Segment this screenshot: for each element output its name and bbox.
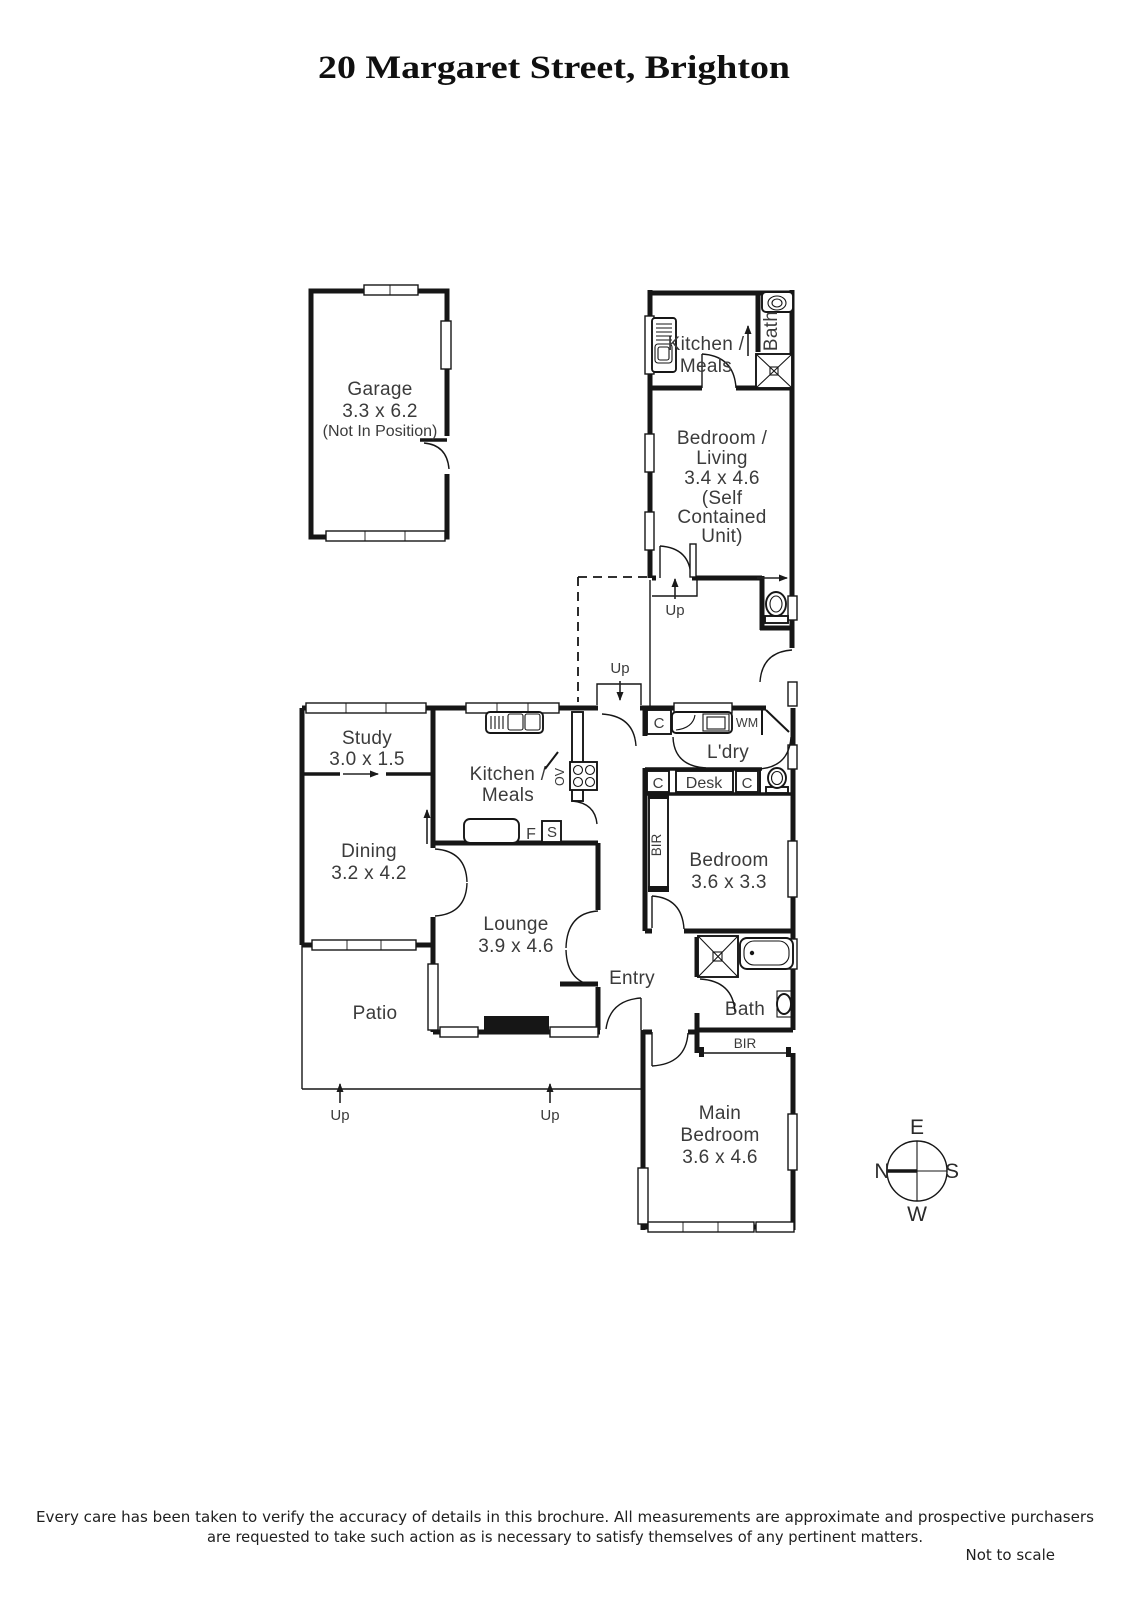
window [326,531,445,541]
unit-bedliving-l4: (Self [702,488,743,509]
dining-dims: 3.2 x 4.2 [331,863,407,884]
unit-kitchen-label: Kitchen / [668,334,745,355]
unit-bedliving-l6: Unit) [701,526,743,547]
floor-plan-page: 20 Margaret Street, Brighton Garage 3.3 … [0,0,1131,1600]
door-arc [602,714,636,746]
window [428,964,438,1030]
unit-bedliving-l3: 3.4 x 4.6 [684,468,760,489]
basin-bowl [777,994,791,1014]
window [441,321,451,369]
robe-nib [786,1047,791,1057]
unit-bedliving-l1: Bedroom / [677,428,768,449]
window [788,682,797,706]
window [306,703,426,713]
door-arc [660,546,691,577]
door-arc [606,998,641,1029]
door-arc [759,737,791,769]
cistern [765,616,788,623]
robe-nib [699,1047,704,1057]
toilet-icon [766,768,788,793]
step-outline [597,684,641,705]
not-to-scale: Not to scale [965,1546,1055,1564]
window [638,1168,648,1224]
door-gap [656,573,692,583]
fridge-space [464,819,519,843]
window [648,1222,754,1232]
fridge-label: F [526,826,536,843]
compass-e: E [910,1116,924,1139]
tub-drain [750,951,754,955]
cupboard-label: C [654,715,665,732]
double-door-arcs [566,911,598,986]
cupboard-label: C [653,775,664,792]
garage-dims: 3.3 x 6.2 [342,401,418,422]
door-arc [652,896,684,929]
self-contained-unit: Up Kitchen / Meals Bath Bedroom / Living… [645,290,797,630]
toilet-icon [765,592,788,623]
up-label: Up [540,1107,559,1124]
main-bedroom-l1: Main [699,1103,741,1124]
bir-label: BIR [649,834,664,857]
garage-label: Garage [347,379,412,400]
robe-nib [648,886,669,892]
stove-icon [570,762,597,790]
door-arc [652,1033,688,1066]
compass-n: N [874,1160,889,1183]
door-arc [572,801,597,824]
main-house: Up C WM L'dry C Desk C [302,660,797,1232]
double-door-arcs [435,849,467,916]
window [550,1027,598,1037]
unit-bedliving-l5: Contained [677,507,766,528]
compass-w: W [907,1203,927,1226]
main-bedroom-dims: 3.6 x 4.6 [682,1147,758,1168]
window [364,285,418,295]
door-leaf [545,752,558,769]
covered-area-dashed-line [578,577,650,702]
study-dims: 3.0 x 1.5 [329,749,405,770]
door-arc [760,650,792,682]
bathroom: Bath [698,936,793,1020]
compass-s: S [945,1160,959,1183]
lounge-label: Lounge [483,914,548,935]
disclaimer-line2: are requested to take such action as is … [207,1528,923,1546]
entry-label: Entry [609,968,655,989]
desk-label: Desk [686,775,723,792]
robe-nib [648,793,669,799]
bathtub-icon [740,938,793,969]
bedroom: BIR Bedroom 3.6 x 3.3 [648,793,769,929]
kitchen-sink-icon [486,712,543,733]
disclaimer-line1: Every care has been taken to verify the … [36,1508,1094,1526]
window [788,841,797,897]
bedroom-label: Bedroom [689,850,768,871]
garage-note: (Not In Position) [323,423,438,440]
kitchen-label2: Meals [482,785,534,806]
oven-label: OV [553,767,567,786]
main-bedroom-l2: Bedroom [680,1125,759,1146]
door-gap [601,1027,640,1037]
unit-bedliving-l2: Living [696,448,747,469]
window [645,512,654,550]
basin-icon [762,292,793,312]
garage: Garage 3.3 x 6.2 (Not In Position) [311,285,452,541]
bir-label: BIR [734,1036,757,1051]
window [440,1027,478,1037]
cupboard-label: C [742,775,753,792]
up-label: Up [610,660,629,677]
dining-label: Dining [341,841,397,862]
compass: E S W N [874,1116,959,1226]
fireplace [484,1016,549,1034]
closet-row: C Desk C [647,768,788,794]
window [312,940,416,950]
door-arc [673,737,706,768]
pantry-label: S [547,824,557,841]
window [756,1222,794,1232]
lounge-dims: 3.9 x 4.6 [478,936,554,957]
door-leaf [766,710,789,732]
window [645,434,654,472]
patio-label: Patio [353,1003,398,1024]
up-label: Up [665,602,684,619]
main-built-in-robe: BIR [699,1036,791,1057]
laundry-trough-icon [672,712,732,733]
wall-nib [690,544,696,577]
footer: Every care has been taken to verify the … [36,1508,1094,1564]
shower-icon [698,936,738,977]
window [788,596,797,620]
trough-bench [672,712,732,733]
laundry: C WM L'dry [647,708,791,769]
basin-counter [762,292,793,312]
up-label: Up [330,1107,349,1124]
window [788,1114,797,1170]
page-title: 20 Margaret Street, Brighton [318,50,790,86]
floor-plan-svg: 20 Margaret Street, Brighton Garage 3.3 … [0,0,1131,1600]
bedroom-dims: 3.6 x 3.3 [691,872,767,893]
kitchen: OV Kitchen / Meals F S [464,712,597,843]
unit-bath-label: Bath [761,311,782,351]
washing-machine-label: WM [736,716,758,730]
study-label: Study [342,728,392,749]
kitchen-label: Kitchen / [470,764,547,785]
unit-kitchen-label2: Meals [680,356,732,377]
shower-icon [756,354,792,388]
laundry-label: L'dry [707,742,749,763]
bath-label: Bath [725,999,765,1020]
